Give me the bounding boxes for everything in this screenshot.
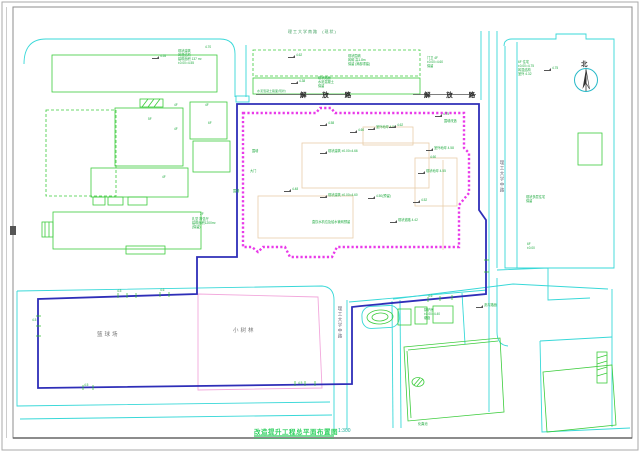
annotation: 4.55 [152, 54, 166, 59]
road-surface-note: 水泥混凝土路面(现状) [257, 89, 286, 93]
annotation: 室外地坪 4.58 [426, 146, 454, 151]
drawing-title: 改造提升工程总平面布置图 [254, 426, 338, 436]
annotation: 现状地坪 4.55 [418, 169, 446, 174]
annotation-text: 大门 [250, 169, 256, 173]
annotation-text: 围墙 [233, 189, 239, 193]
area-label-grove: 小树林 [233, 326, 256, 334]
annotation-text: 2F [200, 212, 204, 216]
annotation-text: 化粪池 [418, 422, 428, 426]
annotation-text: 沥青路面 [484, 303, 497, 307]
area-label-basketball: 篮球场 [97, 330, 120, 338]
spot-elevation-icon [152, 55, 159, 59]
annotation: 现状建筑 ±0.00=4.60 [320, 193, 358, 198]
annotation-text: 4.62 [397, 123, 403, 127]
annotation-text: 4.75 [552, 66, 558, 70]
annotation: 现状路面 水泥混凝土 保留 [318, 76, 334, 88]
annotation: 6F 住宅 ±0.00=4.75 砖混结构 室外 4.32 [518, 60, 534, 77]
annotation-text: 礼堂 报告厅 建筑面积1200m² (保留) [192, 217, 216, 229]
annotation: 6F ±0.00 [527, 242, 535, 250]
annotation-text: 4F [174, 103, 178, 107]
annotation: 大门 [250, 169, 256, 173]
annotation-text: 4.75 [443, 112, 449, 116]
annotation-text: 4.5 [84, 383, 88, 387]
annotation: 4.75 [435, 112, 449, 117]
spot-elevation-icon [320, 194, 327, 198]
annotation-text: 6F 住宅 ±0.00=4.75 砖混结构 室外 4.32 [518, 60, 534, 77]
spot-elevation-icon [291, 80, 298, 84]
spot-elevation-icon [288, 54, 295, 58]
annotation-text: 现状建筑 ±0.00=4.66 [328, 149, 358, 153]
annotation-text: 5F [148, 117, 152, 121]
annotation: 4.58 [320, 121, 334, 126]
drawing-scale: 1:300 [338, 428, 351, 434]
annotation: 4F [174, 127, 178, 131]
spot-elevation-icon [435, 113, 442, 117]
annotation-text: 4F [174, 127, 178, 131]
spot-elevation-icon [320, 122, 327, 126]
labels-layer: 理工大学南路 (现状) 水泥混凝土路面(现状) 解 放 路 解 放 路 理工大学… [0, 0, 640, 452]
annotation-text: 4.58 [328, 121, 334, 125]
annotation: 现状建筑 ±0.00=4.66 [320, 149, 358, 154]
annotation: 围墙 [233, 189, 239, 193]
annotation: 6F [208, 121, 212, 125]
annotation-text: 4.5 [298, 381, 302, 385]
annotation-text: 围墙 [252, 149, 258, 153]
spot-elevation-icon [368, 195, 375, 199]
spot-elevation-icon [389, 124, 396, 128]
annotation-text: 4.62 [296, 53, 302, 57]
annotation: 4.62 [389, 123, 403, 128]
annotation: 现状道路 4.42 [390, 218, 418, 223]
annotation-text: 现状地坪 4.55 [426, 169, 446, 173]
annotation: 现状多层住宅 保留 [526, 195, 545, 203]
spot-elevation-icon [418, 170, 425, 174]
road-name-bottom-vertical: 理工大学中路 [337, 306, 343, 354]
annotation: 直饮水机位及给水管网预留 [312, 220, 350, 224]
annotation-text: 4.60 [358, 128, 364, 132]
annotation: 4.6 [160, 288, 164, 292]
annotation-text: 4.5 [32, 318, 36, 322]
annotation: 4.52 [413, 198, 427, 203]
top-road-note: 理工大学南路 (现状) [288, 29, 337, 35]
annotation-text: 室外地坪 4.58 [434, 146, 454, 150]
spot-elevation-icon [284, 188, 291, 192]
annotation: 4.60 [350, 128, 364, 133]
road-name-top-right: 解 放 路 [424, 89, 482, 99]
annotation-text: 锅炉房 ±0.00=4.40 烟囱 [424, 308, 440, 320]
annotation: 围墙 [252, 149, 258, 153]
annotation-text: 4.70 [205, 45, 211, 49]
spot-elevation-icon [413, 199, 420, 203]
annotation-text: 现状道路 4.42 [398, 218, 418, 222]
annotation-text: 4.50(预留) [376, 194, 391, 198]
annotation: 4.62 [288, 53, 302, 58]
annotation: 4.5 [117, 289, 121, 293]
annotation-text: 4.6 [428, 294, 432, 298]
annotation: 围墙改造 [444, 119, 457, 123]
annotation: 礼堂 报告厅 建筑面积1200m² (保留) [192, 217, 216, 229]
annotation-text: 门卫 4F ±0.00=4.60 保留 [427, 56, 443, 68]
annotation: 4F [205, 103, 209, 107]
annotation: 4.38 [291, 79, 305, 84]
annotation: 现状围墙 砖砌 高1.8m 保留 (局部重建) [348, 54, 370, 66]
annotation: 锅炉房 ±0.00=4.40 烟囱 [424, 308, 440, 320]
annotation: 4F [174, 103, 178, 107]
annotation-text: 现状建筑 砖混结构 建筑面积 137 m² ±0.00=4.55 [178, 49, 202, 66]
annotation: 4.70 [205, 45, 211, 49]
annotation: 4.48 [284, 187, 298, 192]
spot-elevation-icon [320, 150, 327, 154]
annotation-text: 4.6 [160, 288, 164, 292]
annotation-text: 6F [208, 121, 212, 125]
annotation: 4F [162, 175, 166, 179]
annotation-text: 现状围墙 砖砌 高1.8m 保留 (局部重建) [348, 54, 370, 66]
annotation-text: 6F ±0.00 [527, 242, 535, 250]
annotation-text: 4.5 [117, 289, 121, 293]
annotation-text: 4.60 [430, 155, 436, 159]
annotation-text: 4.52 [421, 198, 427, 202]
road-name-right-vertical: 理工大学中路 [499, 160, 505, 212]
annotation-text: 现状建筑 ±0.00=4.60 [328, 193, 358, 197]
spot-elevation-icon [426, 147, 433, 151]
annotation: 门卫 4F ±0.00=4.60 保留 [427, 56, 443, 68]
north-label: 北 [581, 58, 588, 68]
spot-elevation-icon [544, 67, 551, 71]
annotation: 4.6 [428, 294, 432, 298]
annotation-text: 4.48 [292, 187, 298, 191]
spot-elevation-icon [476, 304, 483, 308]
annotation: 2F [200, 212, 204, 216]
annotation: 现状建筑 砖混结构 建筑面积 137 m² ±0.00=4.55 [178, 49, 202, 66]
annotation-text: 4.38 [299, 79, 305, 83]
annotation-text: 现状路面 水泥混凝土 保留 [318, 76, 334, 88]
annotation: 化粪池 [418, 422, 428, 426]
drawing-sheet: 理工大学南路 (现状) 水泥混凝土路面(现状) 解 放 路 解 放 路 理工大学… [0, 0, 640, 452]
annotation: 沥青路面 [476, 303, 497, 308]
annotation-text: 现状多层住宅 保留 [526, 195, 545, 203]
annotation: 4.50(预留) [368, 194, 391, 199]
road-name-top-left: 解 放 路 [300, 89, 358, 99]
annotation: 4.5 [32, 318, 36, 322]
annotation-text: 围墙改造 [444, 119, 457, 123]
spot-elevation-icon [368, 126, 375, 130]
annotation-text: 4.55 [160, 54, 166, 58]
annotation: 5F [148, 117, 152, 121]
spot-elevation-icon [390, 219, 397, 223]
annotation: 4.75 [544, 66, 558, 71]
annotation-text: 4F [162, 175, 166, 179]
annotation: 4.5 [298, 381, 302, 385]
annotation: 4.5 [84, 383, 88, 387]
annotation-text: 直饮水机位及给水管网预留 [312, 220, 350, 224]
spot-elevation-icon [350, 129, 357, 133]
annotation: 4.60 [430, 155, 436, 159]
annotation-text: 4F [205, 103, 209, 107]
